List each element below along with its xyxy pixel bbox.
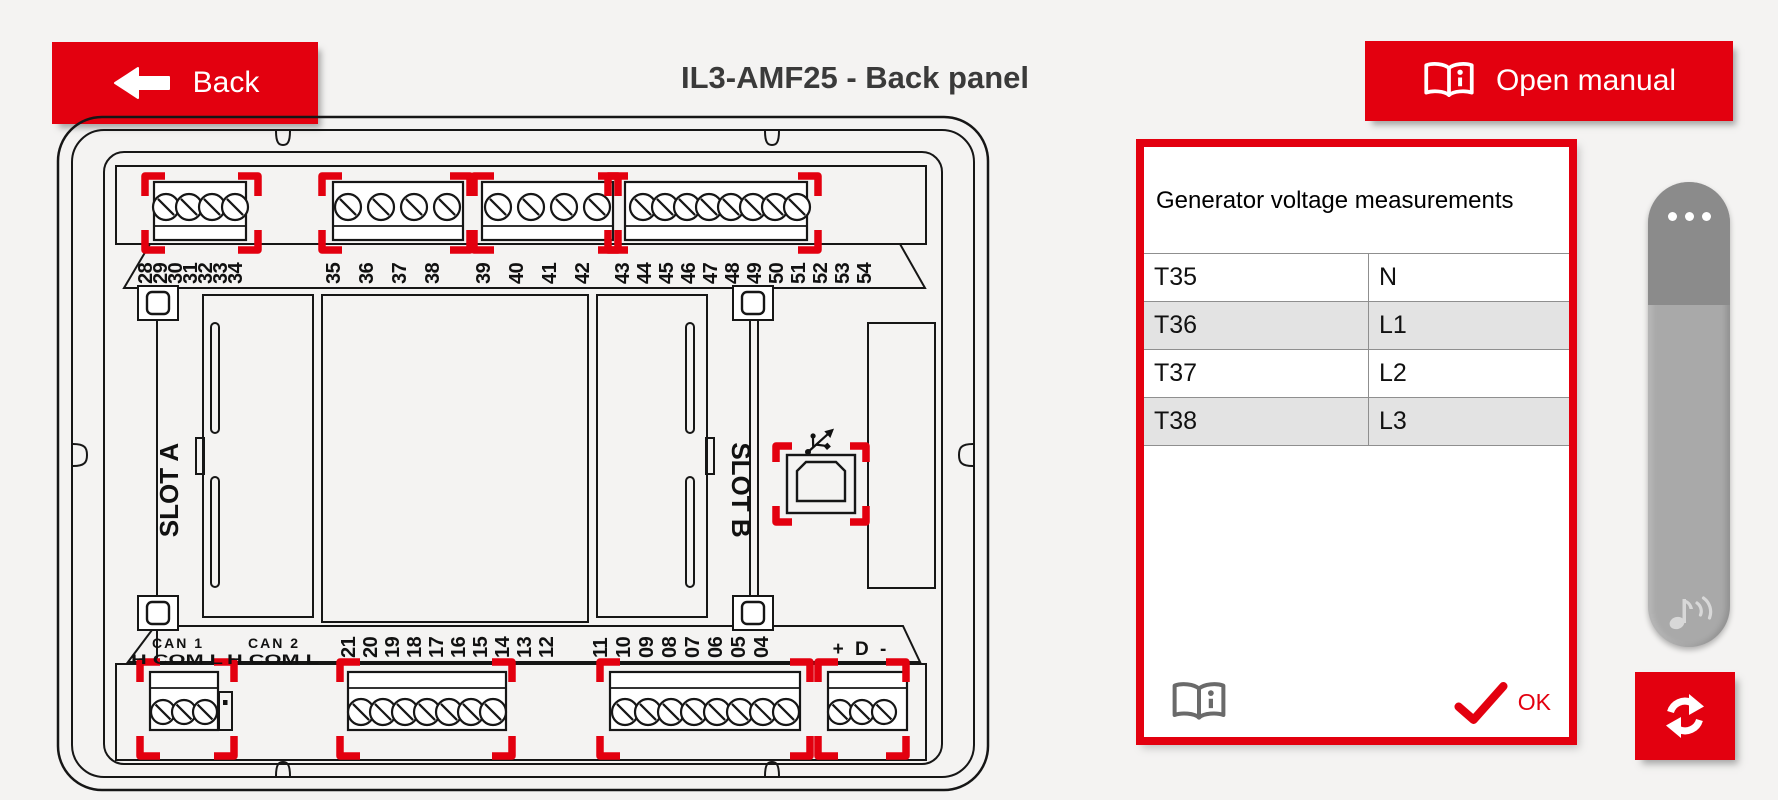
terminal-number: 54 bbox=[854, 261, 876, 284]
screen: Back IL3-AMF25 - Back panel Open manual bbox=[0, 0, 1778, 800]
more-dots-icon bbox=[1685, 212, 1694, 221]
manual-icon[interactable] bbox=[1170, 680, 1228, 725]
terminal-number: 41 bbox=[539, 262, 561, 284]
phase-cell: N bbox=[1369, 254, 1570, 302]
terminal-number: 45 bbox=[656, 262, 678, 284]
can2-label: CAN 2 bbox=[248, 635, 298, 651]
housing-notch bbox=[765, 131, 779, 145]
back-panel-diagram: 2829303132333435363738394041424344454647… bbox=[48, 110, 998, 800]
top-terminal-block-3[interactable] bbox=[482, 182, 613, 240]
bottom-terminal-block-4[interactable] bbox=[828, 672, 907, 730]
phase-cell: L2 bbox=[1369, 350, 1570, 398]
usb-socket-inner bbox=[797, 462, 845, 501]
open-manual-button[interactable]: Open manual bbox=[1365, 41, 1733, 121]
d-bus-label: + D - bbox=[833, 639, 890, 660]
terminal-number: 36 bbox=[356, 262, 378, 284]
open-manual-label: Open manual bbox=[1496, 64, 1676, 98]
back-arrow-icon bbox=[111, 65, 173, 101]
terminal-row: T38L3 bbox=[1144, 398, 1569, 446]
slot-b-bay bbox=[597, 295, 707, 617]
terminal-number: 12 bbox=[536, 636, 558, 658]
housing-notch bbox=[276, 131, 290, 145]
terminal-number: 44 bbox=[634, 261, 656, 284]
slot-a-label: SLOT A bbox=[154, 443, 184, 538]
can2-pins-label: H COM L bbox=[227, 651, 320, 667]
terminal-number: 09 bbox=[636, 636, 658, 658]
terminal-number: 07 bbox=[682, 636, 704, 658]
refresh-icon bbox=[1658, 689, 1712, 743]
terminal-cell: T35 bbox=[1144, 254, 1369, 302]
side-scrollbar[interactable] bbox=[1648, 182, 1730, 647]
slot-b-opening bbox=[686, 477, 694, 587]
can1-label: CAN 1 bbox=[152, 635, 202, 651]
terminal-number: 50 bbox=[766, 262, 788, 284]
terminal-cell: T37 bbox=[1144, 350, 1369, 398]
more-dots-icon bbox=[1702, 212, 1711, 221]
fixing-screw bbox=[733, 286, 773, 320]
terminal-number: 08 bbox=[659, 636, 681, 658]
terminal-number: 42 bbox=[572, 262, 594, 284]
terminal-number: 21 bbox=[338, 636, 360, 658]
bottom-terminal-block-2[interactable] bbox=[348, 672, 506, 730]
page-title: IL3-AMF25 - Back panel bbox=[600, 60, 1110, 96]
usb-port[interactable] bbox=[787, 420, 855, 513]
terminal-cell: T38 bbox=[1144, 398, 1369, 446]
fixing-screw bbox=[138, 596, 178, 630]
more-dots-icon bbox=[1668, 212, 1677, 221]
terminal-number: 39 bbox=[473, 262, 495, 284]
terminal-table: T35NT36L1T37L2T38L3 bbox=[1144, 253, 1569, 446]
terminal-number: 10 bbox=[613, 636, 635, 658]
terminal-number: 17 bbox=[426, 636, 448, 658]
fixing-screw bbox=[138, 286, 178, 320]
bottom-terminal-block-3[interactable] bbox=[610, 672, 800, 730]
fixing-screw bbox=[733, 596, 773, 630]
top-terminal-block-4[interactable] bbox=[625, 182, 810, 240]
terminal-number: 53 bbox=[832, 262, 854, 284]
terminal-row: T35N bbox=[1144, 254, 1569, 302]
terminal-number: 51 bbox=[788, 262, 810, 284]
info-panel: Generator voltage measurements T35NT36L1… bbox=[1136, 139, 1577, 745]
terminal-cell: T36 bbox=[1144, 302, 1369, 350]
terminal-number: 43 bbox=[612, 262, 634, 284]
terminal-number: 19 bbox=[382, 636, 404, 658]
blank-cover bbox=[868, 323, 935, 588]
terminal-number: 04 bbox=[751, 635, 773, 658]
terminal-number: 48 bbox=[722, 262, 744, 284]
terminal-number: 13 bbox=[514, 636, 536, 658]
ok-button[interactable]: OK bbox=[1454, 681, 1551, 725]
terminal-number: 47 bbox=[700, 262, 722, 284]
slot-a-opening bbox=[211, 323, 219, 433]
phase-cell: L1 bbox=[1369, 302, 1570, 350]
open-book-icon bbox=[1422, 60, 1476, 102]
top-terminal-block-1[interactable] bbox=[153, 182, 248, 240]
terminal-number: 16 bbox=[448, 636, 470, 658]
can-termination-switch bbox=[219, 692, 232, 730]
terminal-number: 38 bbox=[422, 262, 444, 284]
terminal-number: 34 bbox=[225, 261, 247, 284]
terminal-number: 49 bbox=[744, 262, 766, 284]
slot-b-opening bbox=[686, 323, 694, 433]
slot-a-opening bbox=[211, 477, 219, 587]
housing-notch bbox=[959, 444, 973, 466]
terminal-number: 35 bbox=[323, 262, 345, 284]
top-terminal-block-2[interactable] bbox=[333, 182, 463, 240]
sound-icon bbox=[1665, 587, 1713, 633]
info-panel-footer: OK bbox=[1170, 680, 1551, 725]
terminal-number: 15 bbox=[470, 636, 492, 658]
terminal-number: 46 bbox=[678, 262, 700, 284]
refresh-button[interactable] bbox=[1635, 672, 1735, 760]
terminal-number: 11 bbox=[590, 637, 612, 658]
can1-pins-label: H COM L bbox=[131, 651, 224, 667]
check-icon bbox=[1454, 681, 1508, 725]
usb-port-highlight[interactable] bbox=[776, 446, 866, 522]
terminal-number: 06 bbox=[705, 636, 727, 658]
ok-label: OK bbox=[1518, 689, 1551, 716]
info-panel-title: Generator voltage measurements bbox=[1156, 187, 1561, 215]
terminal-number: 20 bbox=[360, 636, 382, 658]
scrollbar-grip[interactable] bbox=[1648, 182, 1730, 305]
terminal-number: 52 bbox=[810, 262, 832, 284]
slot-b-label: SLOT B bbox=[726, 442, 756, 537]
terminal-number: 37 bbox=[389, 262, 411, 284]
housing-notch bbox=[73, 444, 87, 466]
back-label: Back bbox=[193, 66, 260, 100]
terminal-number: 40 bbox=[506, 262, 528, 284]
terminal-row: T37L2 bbox=[1144, 350, 1569, 398]
bottom-terminal-block-1[interactable] bbox=[150, 672, 218, 730]
phase-cell: L3 bbox=[1369, 398, 1570, 446]
terminal-number: 14 bbox=[492, 635, 514, 658]
terminal-number: 05 bbox=[728, 636, 750, 658]
terminal-row: T36L1 bbox=[1144, 302, 1569, 350]
terminal-number: 18 bbox=[404, 636, 426, 658]
center-cover bbox=[322, 295, 588, 622]
